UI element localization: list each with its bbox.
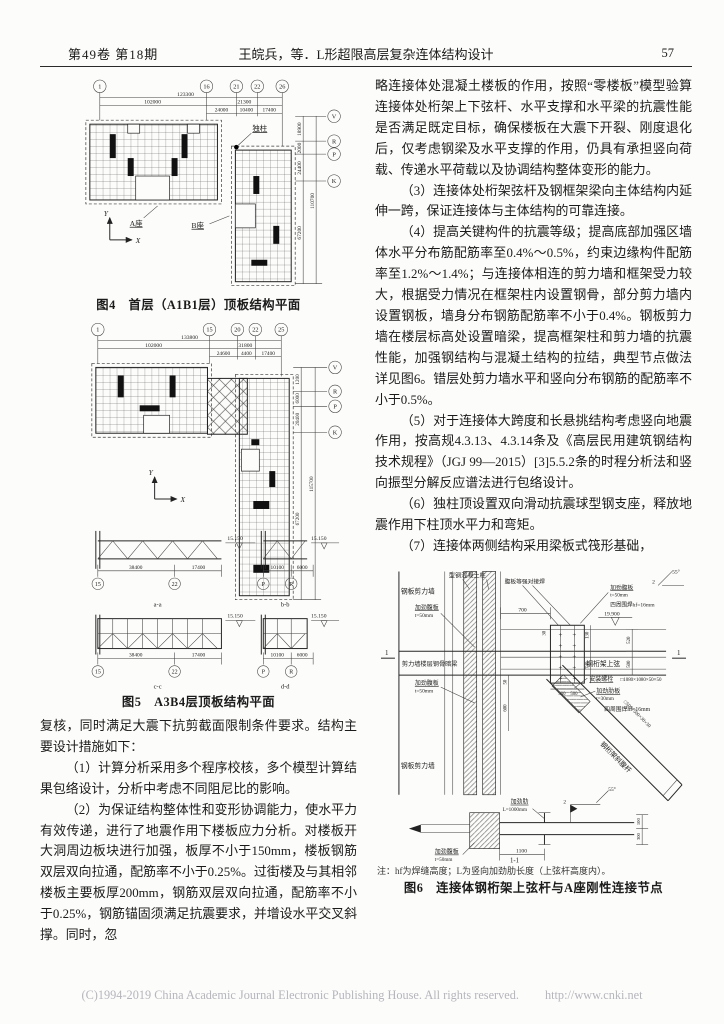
weld-symbol: 2 55° [652,568,684,585]
fig4-plan-drawing: 1 16 21 22 26 123300 102000 21300 24000 … [40,76,357,294]
section-name: 1-1 [510,857,519,862]
dim-label: 18900 [297,122,303,136]
dim-label: 600 [504,704,509,712]
dim-label: 21300 [237,100,251,106]
weld-angle: 55° [672,568,680,575]
dim-label: 67200 [295,512,301,525]
dim-label: 520 [627,636,632,644]
dim-label: 38400 [129,565,143,571]
src-column-label: 型钢混凝土柱 [449,571,486,579]
single-column-dot [234,145,239,150]
grid-bubble: P [333,404,337,411]
stiff-rib-length: L=1000mm [503,807,527,813]
grid-bubble: R [289,582,293,588]
page-footer: (C)1994-2019 China Academic Journal Elec… [0,988,724,1003]
fig5-section-cc: 15.150 38400 17400 15 22 c-c [92,614,255,691]
fig5-axis-icon: Y X [149,468,186,504]
dim-label: 1100 [516,848,527,854]
fig4-block-b-plan [231,146,295,286]
axis-y-label: Y [104,209,109,218]
fig6-node-detail-drawing: 钢板剪力墙 钢板剪力墙 型钢混凝土柱 加劲腹板 t=50mm 加劲腹板 t=50… [375,563,692,863]
block-a-label: A座 [130,218,143,228]
hidden-beam-label: 剪力墙楼层钢骨暗梁 [402,660,458,668]
svg-text:+: + [558,664,562,672]
grid-bubble: V [332,113,337,120]
svg-text:+: + [572,664,576,672]
diagonal-brace [546,665,682,801]
web-butt-weld-label: 腹板等强对接焊 [505,577,546,585]
block-b-label: B座 [192,220,205,230]
grid-bubble: P [262,670,266,676]
dim-label: 17400 [192,653,206,659]
stiff-web-thickness: t=50mm [435,857,453,863]
stiff-web-label: 加劲腹板 [415,603,439,611]
elevation-label: 15.150 [311,536,327,542]
dim-label: 38400 [129,653,143,659]
elevation-label: 15.150 [311,614,327,620]
fig4-caption: 图4 首层（A1B1层）顶板结构平面 [40,295,357,313]
steel-plate-wall-label: 钢板剪力墙 [401,761,435,770]
dim-label: 10100 [271,565,285,571]
grid-bubble: V [333,365,338,372]
axis-y-label: Y [149,468,154,477]
svg-text:+: + [572,631,576,639]
bolt-group: ++ ++ ++ ++ ++ [550,625,584,683]
stiff-web-thickness: t=50mm [415,688,434,694]
grid-bubble: 22 [172,582,178,588]
dim-label: 20400 [295,412,301,425]
grid-bubble: K [332,178,337,185]
dim-label: 6000 [297,653,308,659]
dim-label: 17400 [262,351,276,357]
elevation-label: 19.900 [604,611,620,617]
grid-bubble: P [332,151,336,158]
dim-label: 300 [636,832,641,840]
dim-label: 31800 [238,343,252,349]
top-chord-label: 钢桁架上弦 [586,659,620,668]
fig5-section-aa: 15.150 38400 17400 15 22 a-a [92,531,255,609]
grid-bubble: R [332,138,337,145]
dim-label: 24400 [297,161,303,175]
stiff-web-label: 加劲腹板 [610,583,633,591]
grid-bubble: 1 [98,84,101,91]
stiff-web-label: 加劲腹板 [435,847,459,855]
fig4-block-a-plan [86,120,222,204]
dim-label: 17400 [192,565,206,571]
fig5-grid-bubbles-top: 1 15 20 22 25 [92,323,288,336]
grid-bubble: 22 [172,670,178,676]
section-name: d-d [281,683,290,690]
dim-label: 115700 [309,476,315,492]
grid-bubble: 26 [279,84,285,91]
dim-label: 1200 [295,374,301,385]
box-section-label: □1080×1080×50×50 [620,678,662,683]
right-column: 略连接体处混凝土楼板的作用，按照“零楼板”模型验算连接体处桁架上下弦杆、水平支撑… [375,76,692,946]
figure-5: 1 15 20 22 25 133800 102000 31800 24600 … [40,319,357,710]
weld-size: 2 [652,579,655,585]
elevation-label: 15.150 [227,614,243,620]
grid-bubble: 15 [95,670,101,676]
dim-label: 24600 [217,351,231,357]
svg-text:+: + [572,653,576,661]
grid-bubble: R [333,389,338,396]
grid-bubble: 22 [252,327,258,334]
dim-label: 110700 [310,193,316,209]
page-header: 第49卷 第18期 王皖兵，等．L形超限高层复杂连体结构设计 57 [40,42,692,67]
dim-label: 67200 [297,226,303,240]
dim-label: 17400 [263,108,277,114]
fig5-grid-bubbles-right: V R P K [329,361,342,438]
figure-4: 1 16 21 22 26 123300 102000 21300 24000 … [40,76,357,313]
grid-bubble: 25 [278,327,284,334]
body-paragraph: （4）提高关键构件的抗震等级；提高底部加强区墙体水平分布筋配筋率至0.4%～0.… [375,222,692,410]
grid-bubble: 15 [95,582,101,588]
page-number: 57 [662,46,675,61]
grid-bubble: 22 [254,84,260,91]
axis-x-label: X [135,236,141,245]
dim-label: 123300 [177,92,194,98]
dim-label: 102000 [144,100,161,106]
section-name: b-b [281,602,290,609]
body-paragraph: （3）连接体处桁架弦杆及钢框架梁向主体结构内延伸一跨，保证连接体与主体结构的可靠… [375,181,692,223]
section-name: c-c [154,683,162,690]
two-column-body: 1 16 21 22 26 123300 102000 21300 24000 … [40,76,692,946]
svg-text:+: + [558,653,562,661]
install-bolts-label: 安装螺栓 [589,675,613,683]
svg-text:+: + [558,631,562,639]
dim-label: 24000 [215,108,229,114]
dim-label: 2000 [297,142,303,153]
fig4-grid-bubbles-right: V R P K [328,110,341,187]
dim-label: 4400 [241,351,252,357]
section-name: a-a [154,602,162,609]
body-paragraph: 复核，同时满足大震下抗剪截面限制条件要求。结构主要设计措施如下： [40,716,357,758]
fig6-section-1-1: 加劲肋 L=1000mm 2 55° 100 [409,786,648,863]
dim-label: 500 [627,660,632,668]
dim-label: 740 [585,661,590,669]
grid-bubble: R [289,670,293,676]
fig5-plan-drawing: 1 15 20 22 25 133800 102000 31800 24600 … [40,319,357,691]
dim-label: 10400 [240,108,254,114]
grid-bubble: 15 [206,327,212,334]
svg-text:+: + [572,642,576,650]
fig6-note: 注：hf为焊缝高度；L为竖向加劲肋长度（上弦杆高度内）。 [377,864,692,877]
stiff-web-label: 加劲腹板 [415,679,439,687]
axis-x-label: X [180,495,186,504]
grid-bubble: 1 [96,327,99,334]
body-paragraph: （2）为保证结构整体性和变形协调能力，使水平力有效传递，进行了地震作用下楼板应力… [40,800,357,946]
section-mark: 1 [677,649,681,657]
box-section-label: □500×500×30×30 [622,700,652,730]
stiff-web-thickness: t=50mm [415,613,434,619]
fig6-caption: 图6 连接体钢桁架上弦杆与A座刚性连接节点 [375,878,692,896]
grid-bubble: 20 [234,327,240,334]
stiff-rib-label: 加劲肋 [511,798,529,806]
cnki-url: http://www.cnki.net [545,988,643,1002]
grid-bubble: 21 [233,84,239,91]
left-column: 1 16 21 22 26 123300 102000 21300 24000 … [40,76,357,946]
body-paragraph: （5）对于连接体大跨度和长悬挑结构考虑竖向地震作用，按高规4.3.13、4.3.… [375,411,692,495]
running-title: 王皖兵，等．L形超限高层复杂连体结构设计 [40,44,692,63]
body-paragraph: （1）计算分析采用多个程序校核，多个模型计算结果包络设计，分析中考虑不同阻尼比的… [40,758,357,800]
dim-label: 6000 [297,565,308,571]
body-paragraph: （7）连接体两侧结构采用梁板式筏形基础， [375,536,692,557]
dim-label: 50 [504,679,509,684]
single-column-label: 独柱 [252,123,267,133]
stiff-rib-plate-thickness: t=30mm [596,696,614,702]
dim-label: 102000 [145,343,162,349]
weld-size: 2 [563,800,566,806]
fig5-caption: 图5 A3B4层顶板结构平面 [40,692,357,710]
dim-label: 6000 [295,393,301,404]
dim-label: 100 [636,817,641,825]
dim-label: 10100 [271,653,285,659]
fig4-grid-bubbles-top: 1 16 21 22 26 [94,80,289,93]
dim-label: 130 [585,631,590,639]
svg-text:+: + [558,642,562,650]
copyright-text: (C)1994-2019 China Academic Journal Elec… [81,988,518,1002]
stiff-rib-plate-label: 加劲肋板 [596,687,620,695]
perimeter-weld-label: 四周围焊hf=16mm [610,600,655,608]
steel-plate-wall-label: 钢板剪力墙 [401,586,435,595]
body-paragraph: 略连接体处混凝土楼板的作用，按照“零楼板”模型验算连接体处桁架上下弦杆、水平支撑… [375,76,692,181]
stiff-web-thickness: t=50mm [610,592,628,598]
elevation-label: 15.150 [227,536,243,542]
elevation-mark: 19.900 [598,611,632,625]
dim-label: 133800 [181,335,198,341]
journal-page: 第49卷 第18期 王皖兵，等．L形超限高层复杂连体结构设计 57 [0,0,724,1024]
grid-bubble: 16 [203,84,209,91]
grid-bubble: K [333,429,338,436]
body-paragraph: （6）独柱顶设置双向滑动抗震球型钢支座，释放地震作用下柱顶水平力和弯矩。 [375,494,692,536]
diagonal-label: 钢桁架斜腹杆 [598,739,633,774]
section-mark: 1 [385,649,389,657]
figure-6: 钢板剪力墙 钢板剪力墙 型钢混凝土柱 加劲腹板 t=50mm 加劲腹板 t=50… [375,563,692,896]
fig5-section-dd: 15.150 10100 6000 P R d-d [258,614,340,691]
dim-label: 700 [518,607,527,613]
dim-label: 30 [542,630,547,635]
weld-angle: 55° [608,786,616,793]
